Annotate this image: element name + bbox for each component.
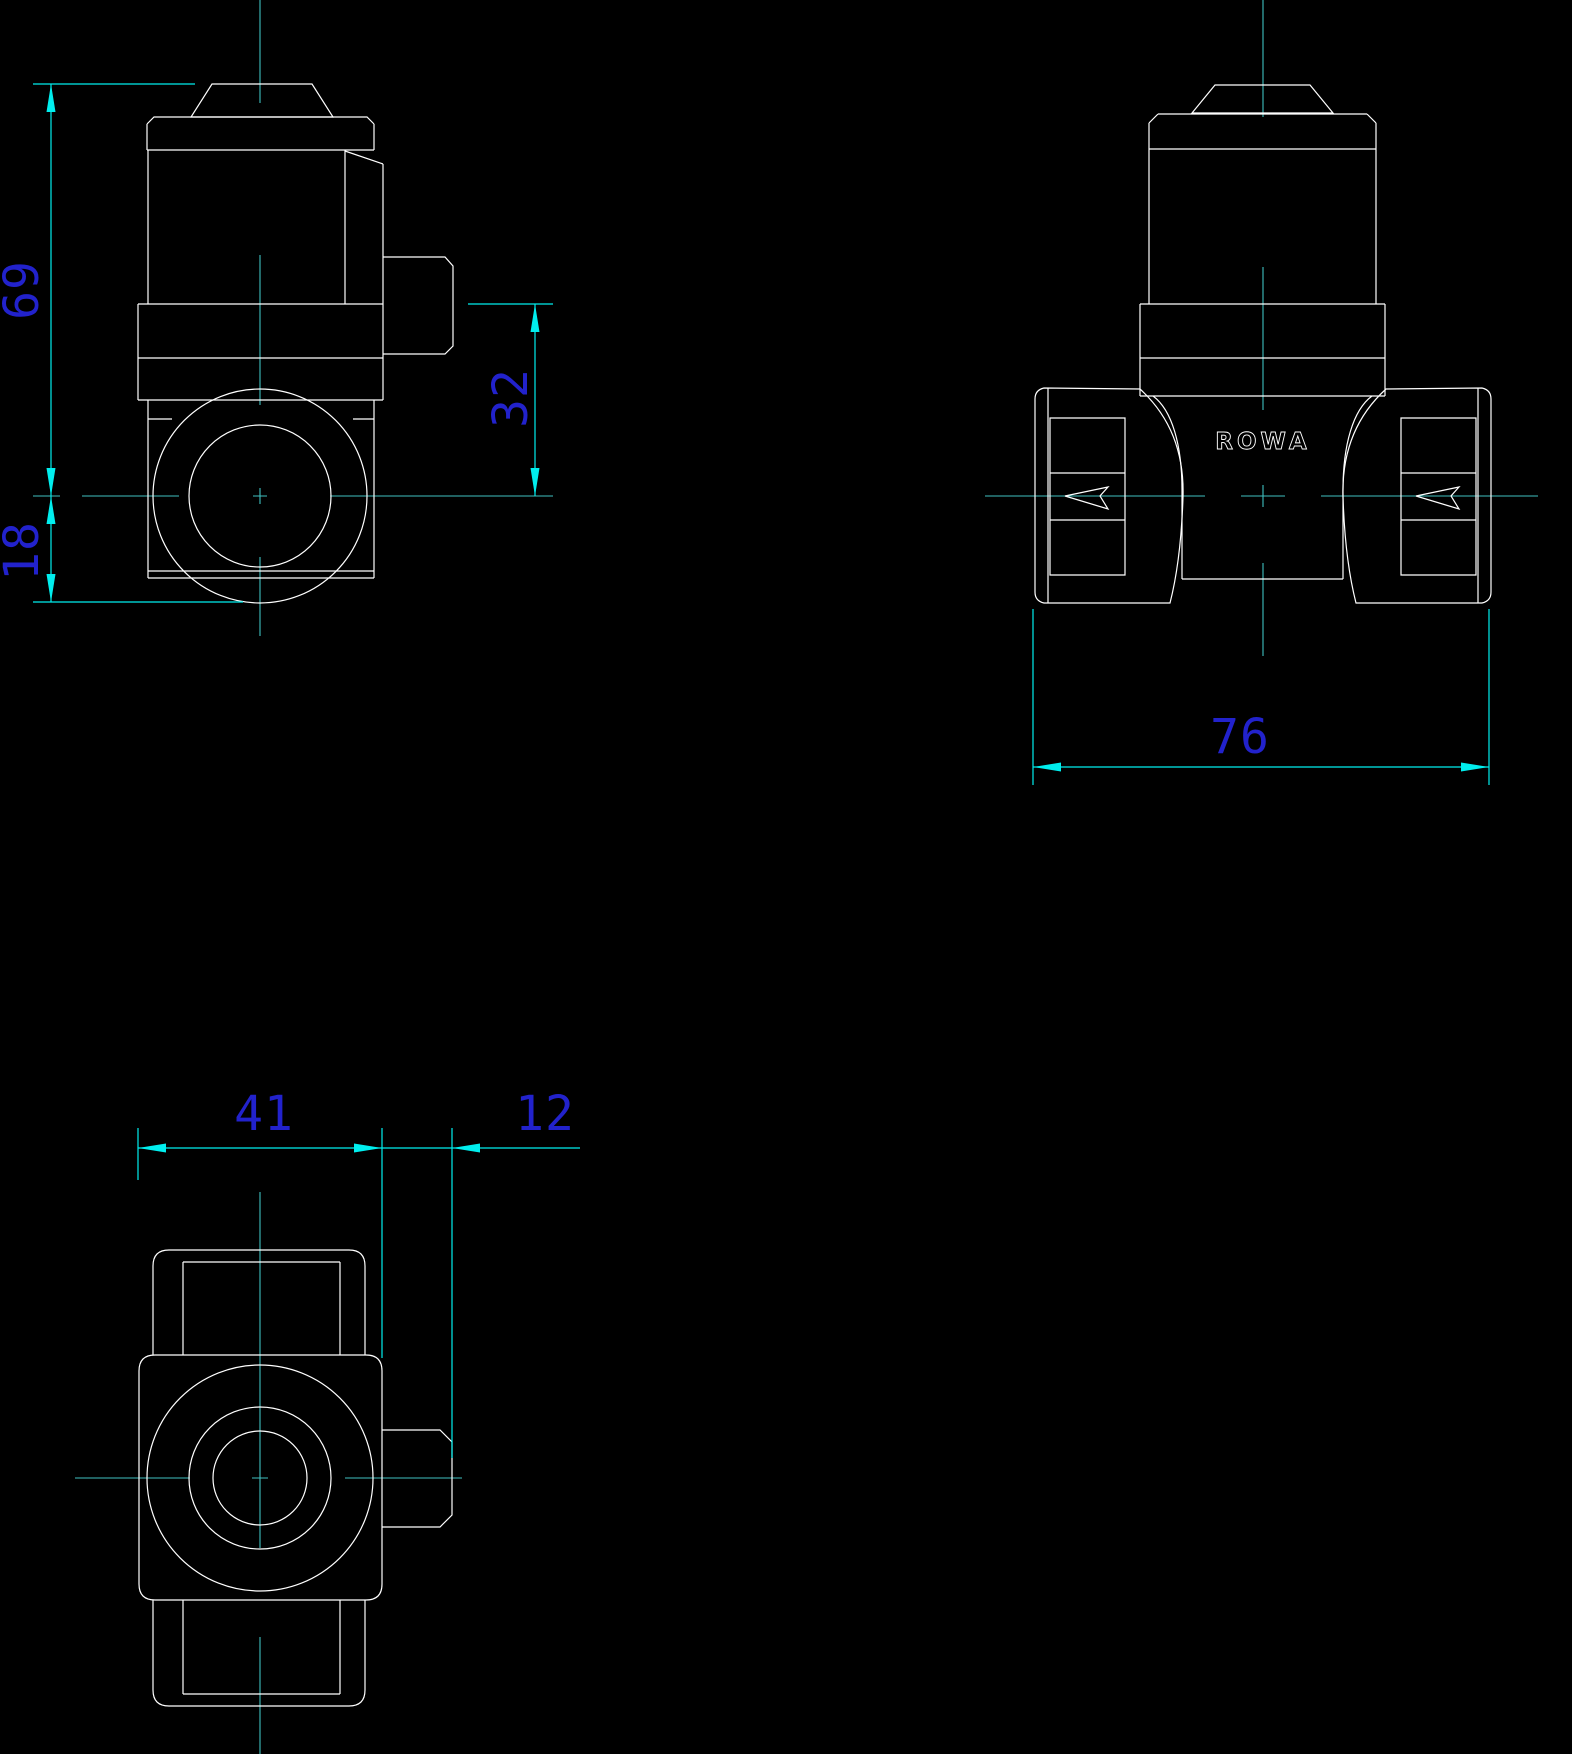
top-view-dimensions: 41 12 bbox=[138, 1086, 580, 1458]
top-view-centerlines bbox=[75, 1192, 462, 1754]
arrow-left-icon bbox=[1033, 763, 1061, 772]
front-view: ROWA 76 bbox=[985, 0, 1538, 785]
dim-12-label: 12 bbox=[515, 1086, 575, 1142]
side-view-dimensions: 69 18 32 bbox=[0, 84, 553, 602]
side-view: 69 18 32 bbox=[0, 0, 553, 636]
arrow-down-icon bbox=[47, 468, 56, 496]
arrow-left-icon bbox=[452, 1144, 480, 1153]
arrow-down-icon bbox=[531, 468, 540, 496]
arrow-up-icon bbox=[47, 496, 56, 524]
arrow-up-icon bbox=[47, 84, 56, 112]
cad-drawing-canvas: 69 18 32 bbox=[0, 0, 1572, 1754]
front-view-dimensions: 76 bbox=[1033, 609, 1489, 785]
arrow-left-icon bbox=[138, 1144, 166, 1153]
arrow-right-icon bbox=[354, 1144, 382, 1153]
dim-18-label: 18 bbox=[0, 521, 50, 581]
front-view-centerlines bbox=[985, 0, 1538, 656]
arrow-up-icon bbox=[531, 304, 540, 332]
side-view-geometry bbox=[138, 84, 453, 603]
arrow-right-icon bbox=[1461, 763, 1489, 772]
brand-logo: ROWA bbox=[1215, 429, 1310, 455]
dim-32-label: 32 bbox=[483, 368, 539, 428]
top-view: 41 12 bbox=[75, 1086, 580, 1754]
valve-technical-drawing: 69 18 32 bbox=[0, 0, 1572, 1754]
flow-arrow-left-icon bbox=[1065, 487, 1108, 509]
dim-76-label: 76 bbox=[1210, 709, 1270, 765]
side-view-centerlines bbox=[33, 0, 553, 636]
dim-69-label: 69 bbox=[0, 260, 50, 320]
flow-arrow-left-icon bbox=[1416, 487, 1459, 509]
dim-41-label: 41 bbox=[234, 1086, 294, 1142]
